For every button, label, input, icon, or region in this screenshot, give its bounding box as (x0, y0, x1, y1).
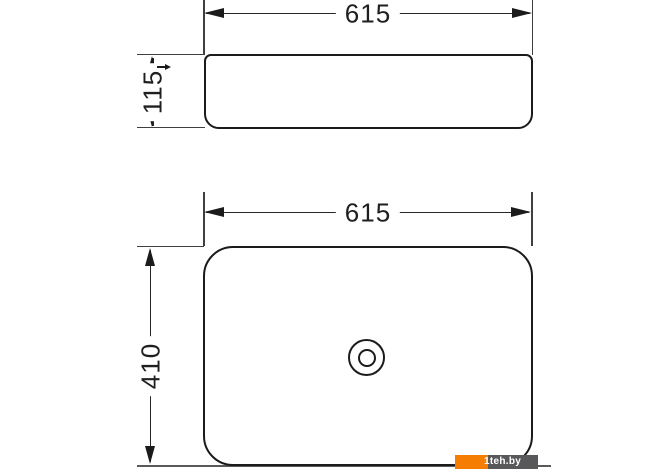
arrow-right-icon (512, 8, 532, 18)
dimension-label-side-height: 115 (139, 63, 166, 121)
dimension-label-plan-height: 410 (137, 336, 164, 396)
technical-drawing-canvas: 615 115 615 410 (0, 0, 670, 471)
extension-line-right (531, 192, 533, 246)
mini-right-arrow-icon (157, 64, 172, 71)
drain-inner-circle (358, 349, 376, 367)
watermark-label: 1teh.by (484, 456, 521, 468)
arrow-left-icon (204, 207, 224, 217)
dimension-label-side-width: 615 (336, 0, 400, 27)
dimension-label-plan-width: 615 (336, 199, 400, 226)
watermark: 1teh.by (455, 455, 538, 469)
arrow-down-icon (145, 446, 155, 464)
mini-right-arrow-head (165, 64, 171, 70)
basin-side-outline (204, 54, 533, 129)
arrow-left-icon (204, 8, 224, 18)
arrow-right-icon (511, 207, 531, 217)
extension-line-left (203, 192, 205, 246)
arrow-up-icon (145, 248, 155, 266)
